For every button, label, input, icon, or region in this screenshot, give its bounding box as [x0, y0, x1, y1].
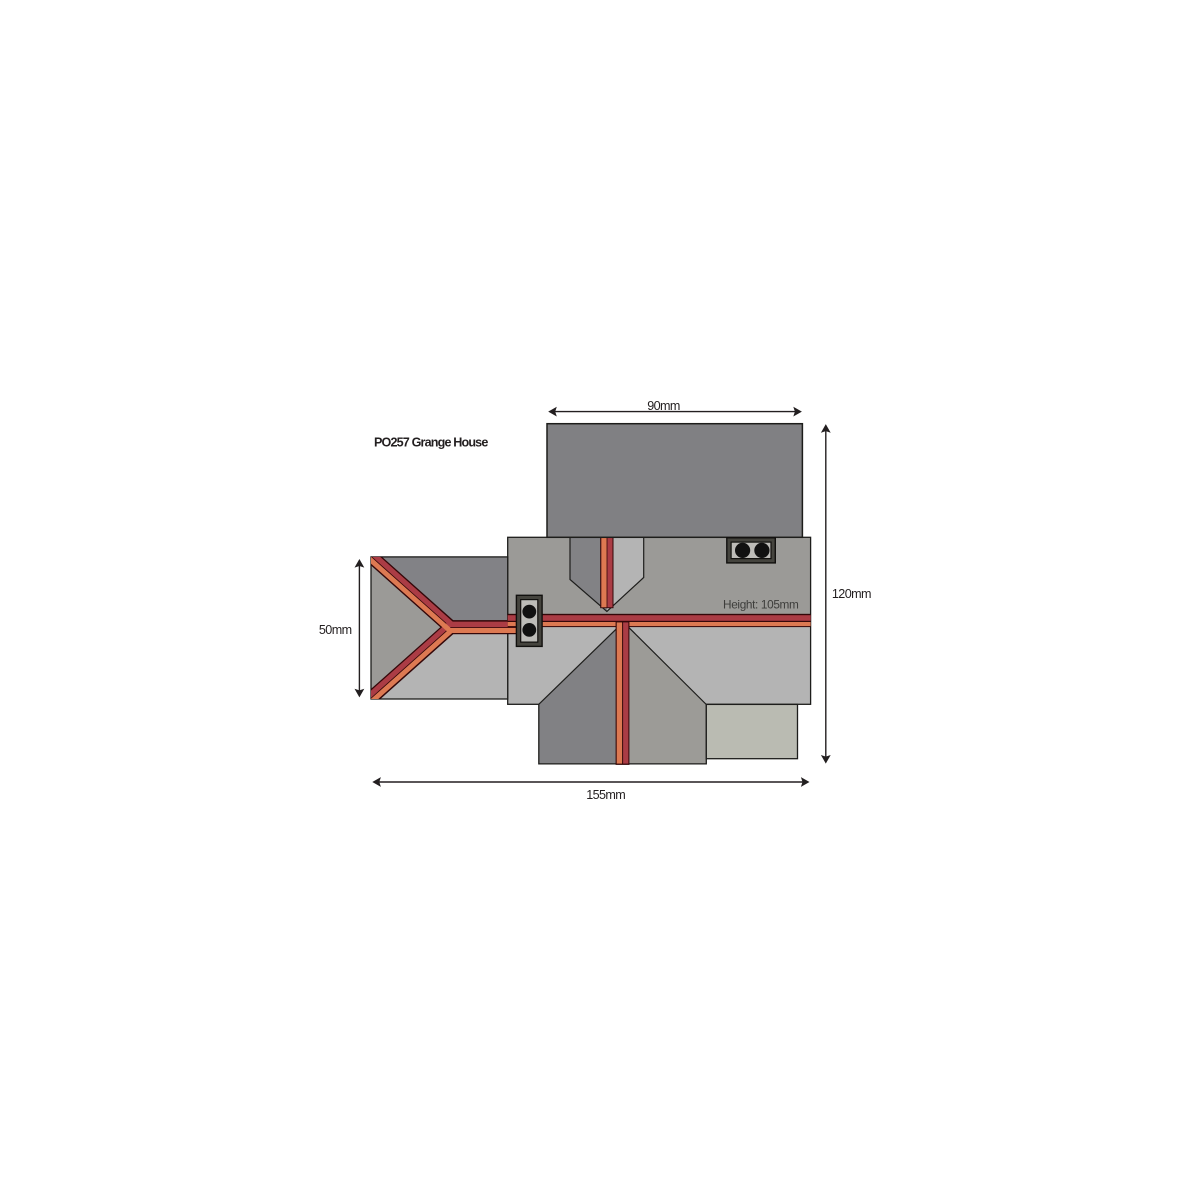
svg-text:120mm: 120mm [832, 587, 871, 601]
svg-text:Height: 105mm: Height: 105mm [723, 598, 799, 612]
svg-text:90mm: 90mm [647, 399, 680, 413]
svg-text:PO257 Grange House: PO257 Grange House [374, 435, 488, 449]
svg-text:155mm: 155mm [586, 788, 625, 802]
svg-text:50mm: 50mm [319, 623, 352, 637]
